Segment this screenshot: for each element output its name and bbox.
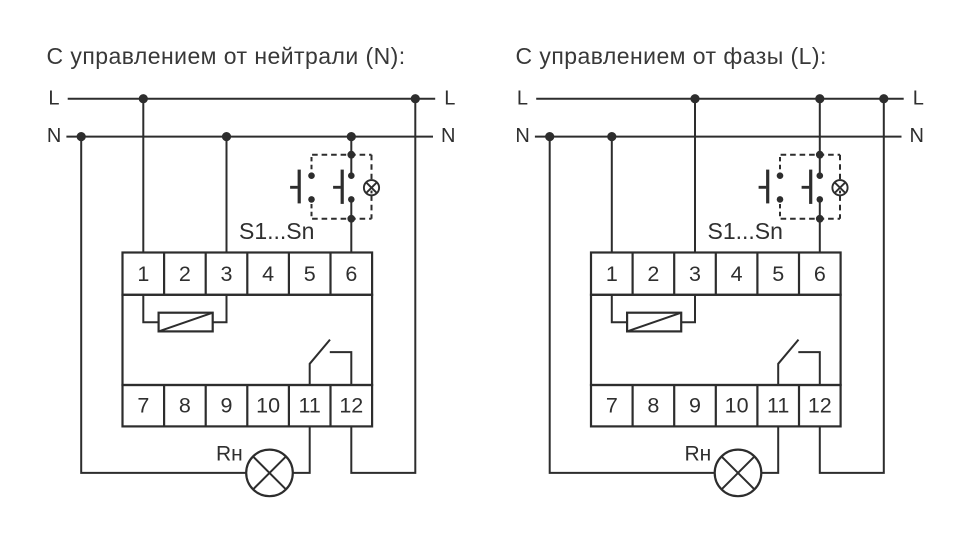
svg-text:12: 12	[339, 394, 363, 418]
svg-text:8: 8	[647, 394, 659, 418]
svg-text:6: 6	[814, 262, 826, 286]
svg-text:6: 6	[345, 262, 357, 286]
svg-text:S1...Sn: S1...Sn	[239, 218, 314, 244]
svg-text:С управлением от нейтрали (N):: С управлением от нейтрали (N):	[47, 43, 406, 69]
svg-text:S1...Sn: S1...Sn	[708, 218, 783, 244]
svg-text:N: N	[441, 125, 455, 147]
svg-text:Rн: Rн	[216, 443, 243, 466]
svg-text:3: 3	[689, 262, 701, 286]
svg-text:8: 8	[179, 394, 191, 418]
svg-text:10: 10	[725, 394, 749, 418]
svg-text:7: 7	[606, 394, 618, 418]
svg-text:1: 1	[137, 262, 149, 286]
svg-text:L: L	[48, 88, 59, 110]
svg-text:С управлением от фазы (L):: С управлением от фазы (L):	[516, 43, 827, 69]
svg-text:11: 11	[767, 394, 789, 418]
svg-text:Rн: Rн	[685, 443, 712, 466]
svg-text:2: 2	[179, 262, 191, 286]
svg-text:N: N	[47, 125, 61, 147]
svg-text:N: N	[515, 125, 529, 147]
svg-text:9: 9	[221, 394, 233, 418]
svg-text:3: 3	[221, 262, 233, 286]
svg-text:4: 4	[262, 262, 274, 286]
svg-text:5: 5	[304, 262, 316, 286]
svg-text:N: N	[910, 125, 924, 147]
svg-text:L: L	[444, 88, 455, 110]
svg-text:5: 5	[772, 262, 784, 286]
svg-text:9: 9	[689, 394, 701, 418]
svg-text:11: 11	[299, 394, 321, 418]
svg-text:7: 7	[137, 394, 149, 418]
svg-text:10: 10	[256, 394, 280, 418]
svg-text:L: L	[913, 88, 924, 110]
svg-text:4: 4	[731, 262, 743, 286]
svg-text:1: 1	[606, 262, 618, 286]
svg-text:12: 12	[808, 394, 832, 418]
svg-text:L: L	[517, 88, 528, 110]
svg-text:2: 2	[647, 262, 659, 286]
